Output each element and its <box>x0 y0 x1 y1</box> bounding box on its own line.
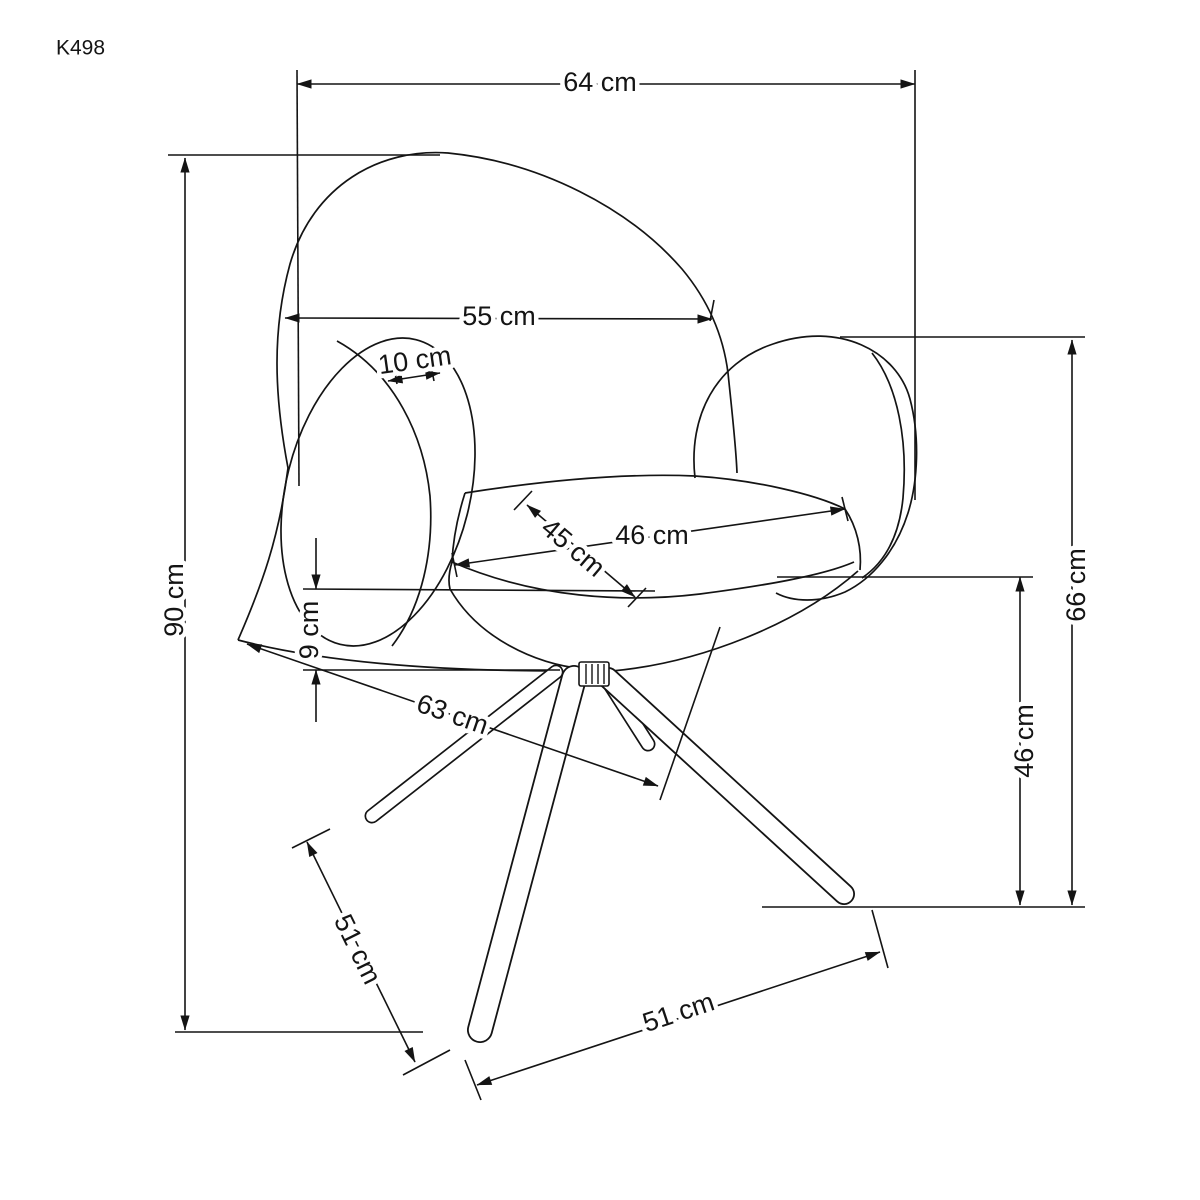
seat-underside-left <box>450 589 584 669</box>
leg-back-left-fill <box>372 672 556 816</box>
backrest-bottom-edge <box>238 640 562 671</box>
dim-label-leg-side: 51 cm <box>328 910 387 989</box>
tick-9-top <box>303 589 655 591</box>
right-armrest-rim <box>862 353 904 578</box>
tick-51l-top <box>292 829 330 848</box>
tick-51b-right <box>872 910 888 968</box>
chair-dimension-drawing: K498 64 cm 55 cm 10 cm 90 cm 9 cm 45 cm … <box>0 0 1200 1200</box>
leg-front-right-fill <box>608 678 844 894</box>
drawing-canvas: K498 64 cm 55 cm 10 cm 90 cm 9 cm 45 cm … <box>0 0 1200 1200</box>
dim-label-leg-front: 51 cm <box>639 986 718 1038</box>
leg-front-left-fill <box>480 678 574 1030</box>
extension-lines <box>168 70 1085 1100</box>
dim-label-seat-edge-thickness: 9 cm <box>294 601 324 660</box>
seat-front-edge <box>452 562 854 598</box>
backrest-outline <box>238 153 737 640</box>
swivel-hub <box>579 662 609 686</box>
right-armrest <box>694 336 917 600</box>
dim-label-seat-height: 46 cm <box>1009 704 1039 778</box>
dim-label-armrest-height: 66 cm <box>1061 548 1091 622</box>
chair-outline <box>238 153 917 671</box>
model-label: K498 <box>56 37 105 60</box>
seat-back-edge <box>465 475 845 509</box>
dim-label-seat-depth: 45 cm <box>535 512 610 583</box>
ext-64-left <box>297 70 299 486</box>
dimension-labels: K498 64 cm 55 cm 10 cm 90 cm 9 cm 45 cm … <box>56 37 1091 1038</box>
dim-label-backrest-width: 55 cm <box>462 301 536 331</box>
seat-underside-right <box>612 571 858 671</box>
dimension-lines <box>185 84 1072 1085</box>
dim-label-seat-width: 46 cm <box>615 520 689 550</box>
dim-label-overall-width: 64 cm <box>563 67 637 97</box>
dim-label-base-depth: 63 cm <box>413 688 492 740</box>
dim-label-shell-thickness: 10 cm <box>376 340 453 380</box>
dim-label-overall-height: 90 cm <box>159 563 189 637</box>
tick-51l-bottom <box>403 1050 450 1075</box>
tick-51b-left <box>465 1060 481 1100</box>
left-armrest-rim <box>337 341 431 646</box>
